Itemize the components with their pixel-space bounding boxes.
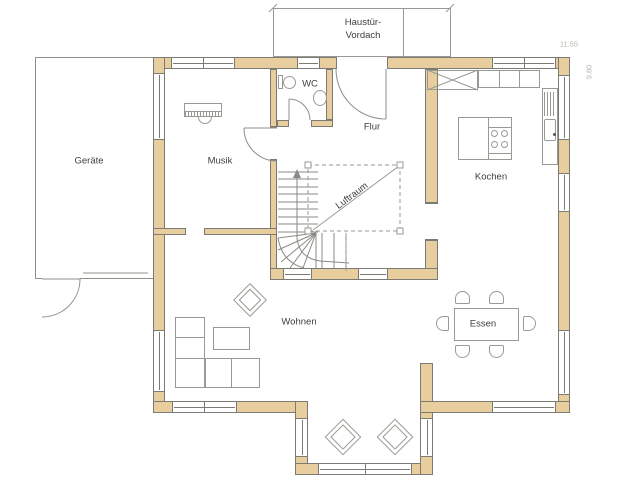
stairs: [278, 172, 346, 268]
wc-door-arc: [289, 99, 310, 120]
label-musik: Musik: [208, 156, 233, 167]
pantry-x-lines: [427, 70, 478, 90]
label-geraete: Geräte: [74, 156, 103, 167]
geraete-door-arc: [42, 279, 80, 317]
dimension-height: 9.80: [585, 65, 594, 80]
label-essen: Essen: [470, 319, 496, 330]
label-kochen: Kochen: [475, 172, 507, 183]
canopy-dimension-ticks: [269, 4, 454, 12]
void-corner-post-4: [397, 228, 403, 234]
musik-door-arc: [244, 128, 277, 161]
label-wohnen: Wohnen: [281, 317, 316, 328]
entrance-door-arc: [336, 69, 386, 119]
door-swings: [42, 69, 386, 317]
stair-direction-arrow: [293, 169, 349, 263]
plan-linework: [0, 0, 640, 480]
dimension-width: 11.55: [560, 40, 578, 49]
void-corner-post-3: [305, 228, 311, 234]
luftraum-void: [305, 162, 403, 271]
floor-plan: Haustür- Vordach: [0, 0, 640, 480]
label-flur: Flur: [364, 122, 380, 133]
void-corner-post-1: [305, 162, 311, 168]
stair-inner-curve: [278, 238, 304, 268]
label-wc: WC: [302, 79, 318, 90]
void-corner-post-2: [397, 162, 403, 168]
